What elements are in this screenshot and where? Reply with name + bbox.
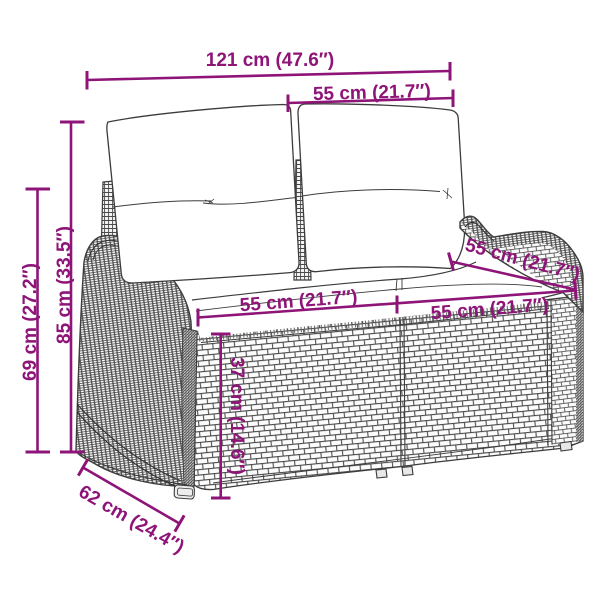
svg-text:85 cm (33.5″): 85 cm (33.5″): [54, 226, 75, 344]
svg-text:55 cm (21.7″): 55 cm (21.7″): [313, 81, 431, 105]
svg-text:121 cm (47.6″): 121 cm (47.6″): [206, 50, 334, 71]
svg-text:37 cm (14.6″): 37 cm (14.6″): [226, 357, 247, 475]
svg-text:69 cm (27.2″): 69 cm (27.2″): [20, 263, 41, 381]
